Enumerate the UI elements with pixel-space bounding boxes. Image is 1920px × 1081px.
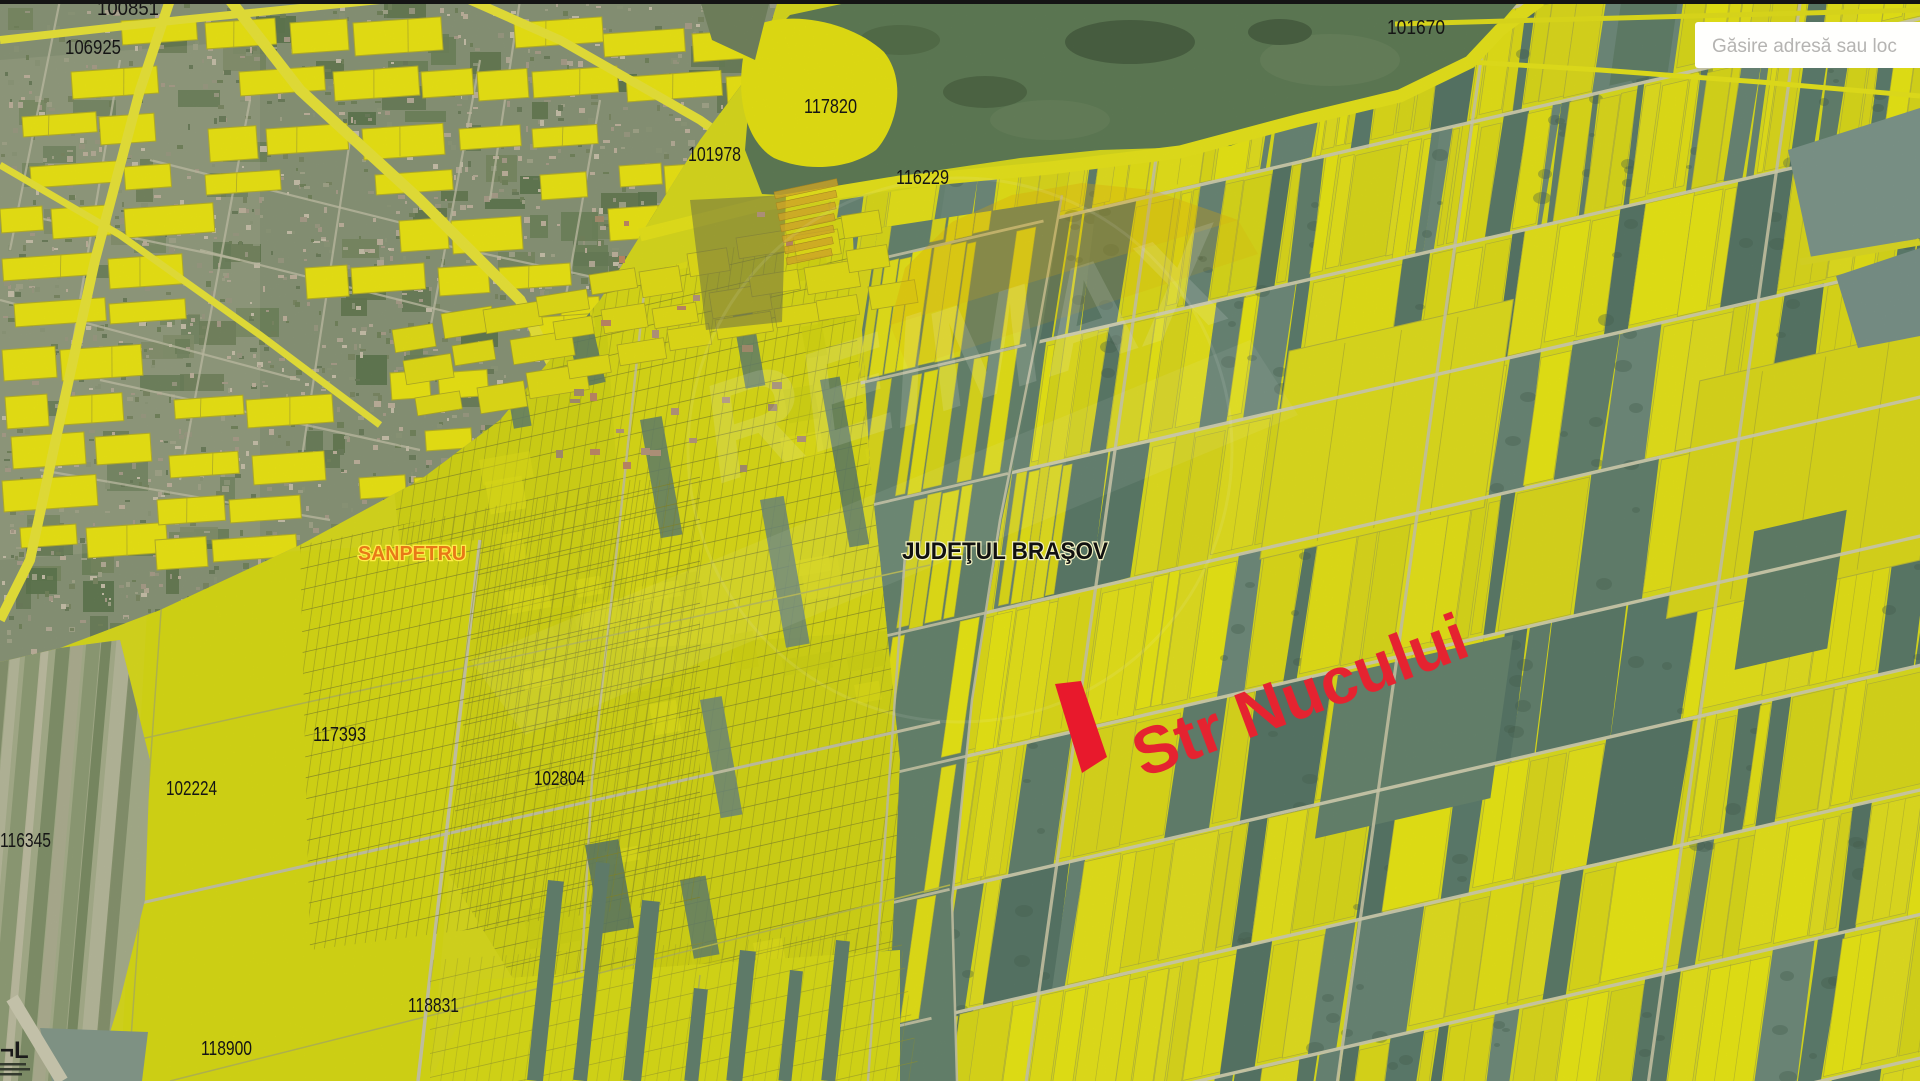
svg-text:Găsire adresă sau loc: Găsire adresă sau loc	[1712, 36, 1897, 57]
svg-text:118831: 118831	[408, 995, 459, 1017]
svg-text:101978: 101978	[688, 144, 741, 166]
svg-text:116229: 116229	[896, 167, 949, 189]
svg-text:¬L: ¬L	[0, 1037, 29, 1064]
svg-text:SANPETRU: SANPETRU	[358, 543, 466, 565]
svg-text:102804: 102804	[534, 768, 585, 790]
svg-text:JUDEŢUL BRAŞOV: JUDEŢUL BRAŞOV	[902, 538, 1108, 565]
svg-text:106925: 106925	[65, 37, 121, 59]
svg-text:116345: 116345	[0, 830, 51, 852]
svg-text:117820: 117820	[804, 96, 857, 118]
svg-text:101670: 101670	[1387, 17, 1445, 39]
svg-text:117393: 117393	[313, 724, 366, 746]
svg-text:118900: 118900	[201, 1038, 252, 1060]
svg-text:102224: 102224	[166, 778, 217, 800]
